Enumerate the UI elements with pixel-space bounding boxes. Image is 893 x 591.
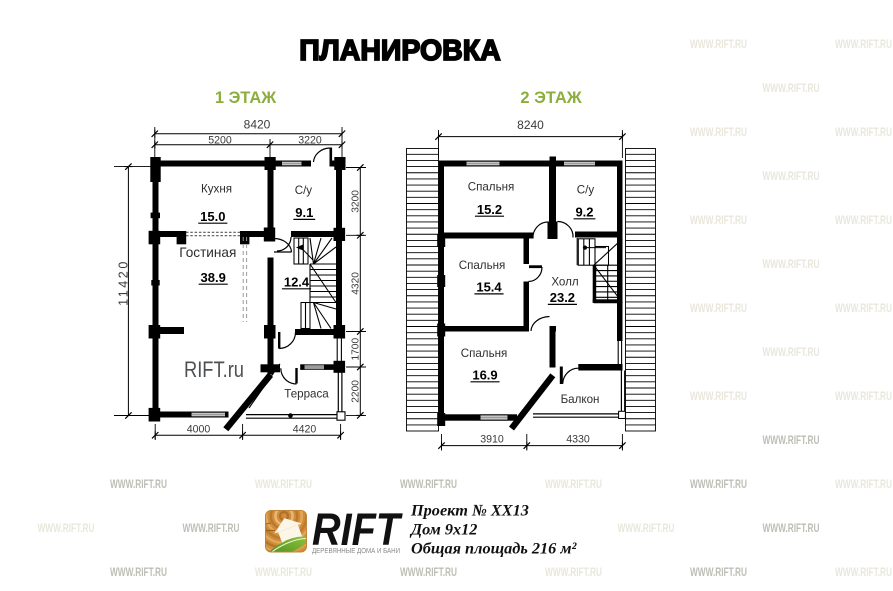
svg-text:Гостиная: Гостиная (179, 245, 236, 260)
svg-text:9.2: 9.2 (575, 205, 593, 220)
svg-text:4330: 4330 (566, 434, 590, 446)
svg-text:23.2: 23.2 (550, 290, 575, 305)
svg-text:WWW.RIFT.RU: WWW.RIFT.RU (690, 303, 747, 315)
svg-text:Балкон: Балкон (561, 393, 600, 406)
svg-text:Спальня: Спальня (459, 259, 506, 272)
svg-text:Холл: Холл (551, 276, 578, 289)
svg-text:8240: 8240 (517, 118, 544, 132)
svg-text:15.2: 15.2 (477, 202, 502, 217)
svg-text:WWW.RIFT.RU: WWW.RIFT.RU (763, 83, 820, 95)
svg-text:Спальня: Спальня (468, 181, 515, 194)
svg-text:15.4: 15.4 (476, 280, 502, 295)
svg-text:38.9: 38.9 (201, 270, 226, 285)
svg-text:WWW.RIFT.RU: WWW.RIFT.RU (835, 567, 892, 579)
svg-text:ДЕРЕВЯННЫЕ ДОМА И БАНИ: ДЕРЕВЯННЫЕ ДОМА И БАНИ (312, 546, 400, 555)
svg-text:3910: 3910 (480, 434, 504, 446)
svg-text:WWW.RIFT.RU: WWW.RIFT.RU (763, 347, 820, 359)
svg-text:WWW.RIFT.RU: WWW.RIFT.RU (690, 215, 747, 227)
svg-text:Кухня: Кухня (201, 183, 232, 196)
svg-text:С/у: С/у (577, 183, 595, 196)
svg-text:WWW.RIFT.RU: WWW.RIFT.RU (690, 39, 747, 51)
svg-text:WWW.RIFT.RU: WWW.RIFT.RU (110, 567, 167, 579)
svg-text:3200: 3200 (351, 190, 362, 213)
svg-text:WWW.RIFT.RU: WWW.RIFT.RU (690, 567, 747, 579)
svg-text:WWW.RIFT.RU: WWW.RIFT.RU (835, 39, 892, 51)
svg-text:12.4: 12.4 (284, 275, 310, 290)
svg-text:2 ЭТАЖ: 2 ЭТАЖ (520, 89, 581, 107)
svg-text:WWW.RIFT.RU: WWW.RIFT.RU (545, 567, 602, 579)
svg-text:9.1: 9.1 (295, 205, 313, 220)
svg-text:WWW.RIFT.RU: WWW.RIFT.RU (690, 127, 747, 139)
svg-text:WWW.RIFT.RU: WWW.RIFT.RU (763, 435, 820, 447)
svg-text:Спальня: Спальня (461, 347, 508, 360)
svg-text:WWW.RIFT.RU: WWW.RIFT.RU (835, 391, 892, 403)
svg-text:WWW.RIFT.RU: WWW.RIFT.RU (835, 303, 892, 315)
svg-text:16.9: 16.9 (472, 368, 497, 383)
svg-text:15.0: 15.0 (200, 209, 225, 224)
svg-text:Общая площадь 216 м²: Общая площадь 216 м² (411, 539, 578, 558)
svg-text:WWW.RIFT.RU: WWW.RIFT.RU (255, 479, 312, 491)
svg-text:8420: 8420 (244, 118, 271, 132)
svg-text:WWW.RIFT.RU: WWW.RIFT.RU (400, 479, 457, 491)
svg-text:1 ЭТАЖ: 1 ЭТАЖ (215, 89, 276, 107)
svg-text:С/у: С/у (295, 184, 313, 197)
svg-text:4320: 4320 (351, 272, 362, 295)
svg-text:WWW.RIFT.RU: WWW.RIFT.RU (835, 127, 892, 139)
svg-text:RIFT.ru: RIFT.ru (184, 357, 244, 382)
svg-text:WWW.RIFT.RU: WWW.RIFT.RU (763, 523, 820, 535)
svg-text:WWW.RIFT.RU: WWW.RIFT.RU (110, 479, 167, 491)
svg-text:2200: 2200 (351, 380, 362, 403)
svg-text:WWW.RIFT.RU: WWW.RIFT.RU (835, 479, 892, 491)
svg-text:Дом 9х12: Дом 9х12 (409, 520, 477, 539)
svg-text:WWW.RIFT.RU: WWW.RIFT.RU (835, 215, 892, 227)
svg-text:WWW.RIFT.RU: WWW.RIFT.RU (183, 523, 240, 535)
svg-text:WWW.RIFT.RU: WWW.RIFT.RU (763, 259, 820, 271)
svg-text:4000: 4000 (187, 423, 211, 435)
svg-text:WWW.RIFT.RU: WWW.RIFT.RU (690, 479, 747, 491)
svg-text:WWW.RIFT.RU: WWW.RIFT.RU (38, 523, 95, 535)
svg-text:WWW.RIFT.RU: WWW.RIFT.RU (618, 523, 675, 535)
svg-text:ПЛАНИРОВКА: ПЛАНИРОВКА (299, 35, 501, 67)
svg-text:WWW.RIFT.RU: WWW.RIFT.RU (255, 567, 312, 579)
svg-text:WWW.RIFT.RU: WWW.RIFT.RU (545, 479, 602, 491)
svg-text:WWW.RIFT.RU: WWW.RIFT.RU (690, 391, 747, 403)
svg-text:Проект № ХХ13: Проект № ХХ13 (410, 501, 529, 520)
svg-text:WWW.RIFT.RU: WWW.RIFT.RU (400, 567, 457, 579)
svg-text:4420: 4420 (293, 423, 317, 435)
svg-text:WWW.RIFT.RU: WWW.RIFT.RU (763, 171, 820, 183)
svg-text:1700: 1700 (351, 338, 362, 361)
svg-text:Терраса: Терраса (284, 387, 329, 400)
